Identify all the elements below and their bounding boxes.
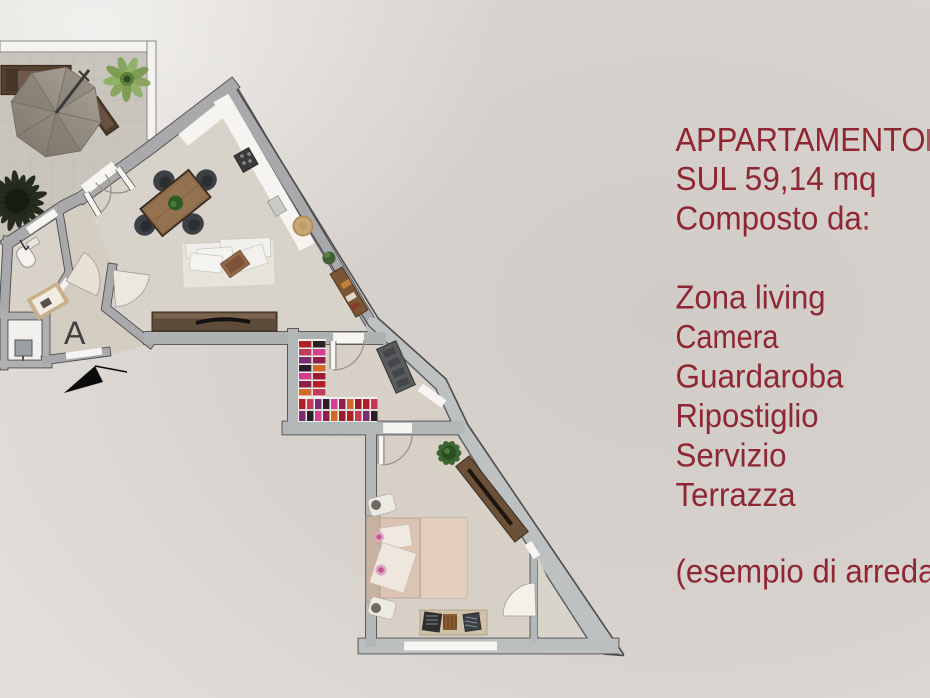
svg-text:Servizio: Servizio [676, 436, 787, 473]
svg-text:SUL 59,14 mq: SUL 59,14 mq [676, 160, 877, 197]
svg-text:Composto da:: Composto da: [676, 200, 871, 237]
svg-text:Guardaroba: Guardaroba [676, 358, 845, 395]
svg-text:Zona living: Zona living [676, 278, 826, 315]
svg-text:Terrazza: Terrazza [676, 476, 797, 513]
svg-text:A: A [64, 315, 86, 351]
svg-text:Camera: Camera [676, 318, 780, 355]
svg-text:APPARTAMENTO: APPARTAMENTO [676, 121, 926, 158]
svg-text:Ripostiglio: Ripostiglio [676, 397, 819, 434]
svg-text:(esempio di arredamento): (esempio di arredamento) [676, 552, 930, 589]
